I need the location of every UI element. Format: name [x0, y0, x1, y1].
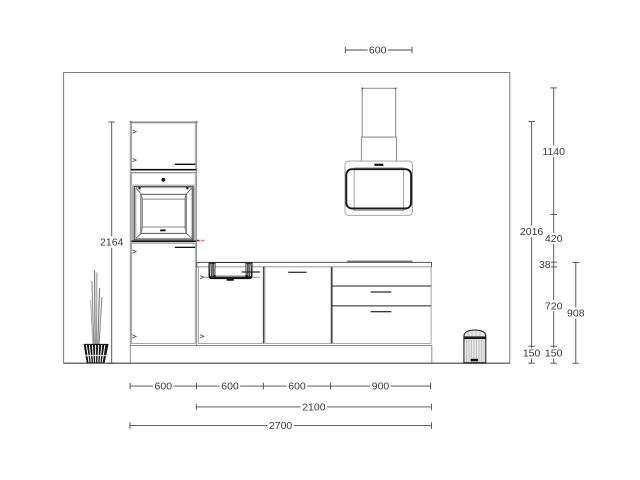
svg-text:600: 600 [288, 381, 306, 393]
svg-text:2164: 2164 [100, 237, 124, 249]
svg-text:150: 150 [523, 348, 541, 360]
svg-text:900: 900 [372, 381, 390, 393]
svg-text:2700: 2700 [269, 420, 293, 432]
svg-text:908: 908 [567, 308, 585, 320]
svg-text:2100: 2100 [302, 402, 326, 414]
svg-text:720: 720 [545, 300, 563, 312]
svg-text:420: 420 [545, 233, 563, 245]
svg-text:600: 600 [369, 45, 387, 57]
svg-text:2016: 2016 [520, 226, 544, 238]
svg-text:150: 150 [545, 348, 563, 360]
svg-text:1140: 1140 [542, 146, 565, 158]
svg-text:600: 600 [155, 381, 173, 393]
svg-text:600: 600 [221, 381, 239, 393]
svg-text:38: 38 [539, 259, 551, 271]
